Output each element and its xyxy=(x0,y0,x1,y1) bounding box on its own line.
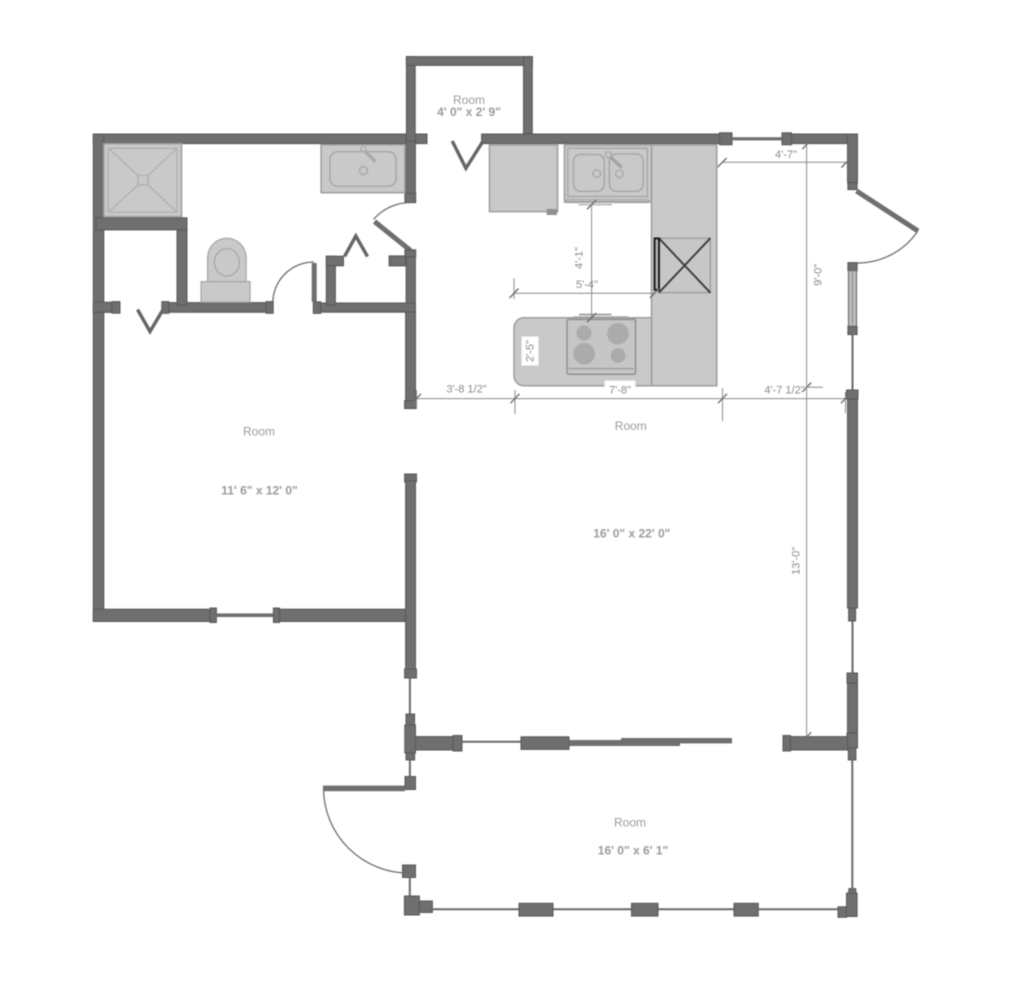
svg-text:11' 6" x 12' 0": 11' 6" x 12' 0" xyxy=(221,484,297,498)
svg-text:5'-4": 5'-4" xyxy=(576,279,598,291)
svg-text:4' 0" x 2' 9": 4' 0" x 2' 9" xyxy=(437,105,501,119)
svg-text:Room: Room xyxy=(615,419,647,433)
svg-text:Room: Room xyxy=(243,424,275,438)
svg-text:2'-5": 2'-5" xyxy=(525,340,537,362)
svg-text:4'-1": 4'-1" xyxy=(574,247,586,269)
svg-text:13'-0": 13'-0" xyxy=(791,547,803,575)
svg-text:9'-0": 9'-0" xyxy=(813,264,825,286)
svg-text:Room: Room xyxy=(614,815,646,829)
svg-text:3'-8 1/2": 3'-8 1/2" xyxy=(446,384,486,396)
svg-text:16' 0" x 6' 1": 16' 0" x 6' 1" xyxy=(598,844,668,858)
svg-text:16' 0" x 22' 0": 16' 0" x 22' 0" xyxy=(593,526,670,540)
svg-text:4'-7": 4'-7" xyxy=(775,149,797,161)
svg-text:4'-7 1/2": 4'-7 1/2" xyxy=(764,385,804,397)
svg-text:7'-8": 7'-8" xyxy=(609,385,631,397)
